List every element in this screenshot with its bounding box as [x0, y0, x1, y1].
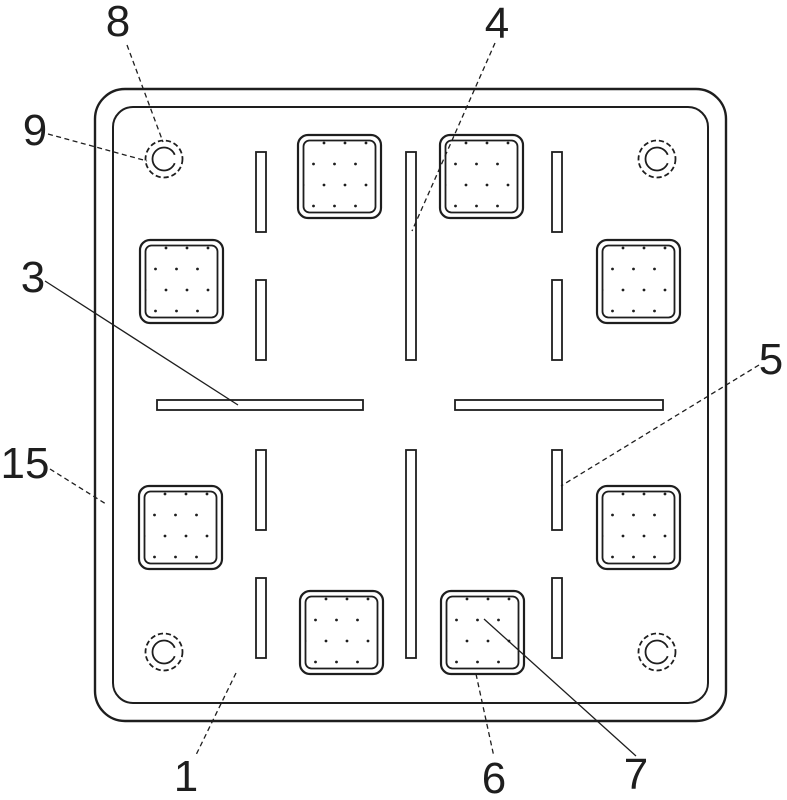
part-label-6: 6 — [482, 757, 506, 800]
pad-lower-right — [597, 486, 680, 569]
part-label-1: 1 — [174, 755, 198, 799]
pad-bottom-center-right — [441, 591, 524, 674]
patent-drawing-canvas: 8 9 3 15 4 5 1 6 7 — [0, 0, 787, 800]
part-label-4: 4 — [485, 2, 509, 46]
slot-vertical-upper-right-2 — [552, 280, 562, 360]
pad-top-center-right — [440, 135, 523, 218]
part-label-7: 7 — [624, 753, 648, 797]
pad-upper-right — [597, 240, 680, 323]
slot-horizontal-left — [157, 400, 363, 410]
pad-top-center-left — [298, 135, 381, 218]
slot-vertical-lower-left-2 — [256, 578, 266, 658]
pad-inner-border — [447, 597, 519, 669]
slot-horizontal-right — [455, 400, 663, 410]
slot-vertical-upper-center — [406, 152, 416, 360]
slot-vertical-upper-left-2 — [256, 280, 266, 360]
part-label-15: 15 — [1, 442, 50, 486]
slot-vertical-upper-left-1 — [256, 152, 266, 232]
slot-vertical-lower-left-1 — [256, 450, 266, 530]
part-label-5: 5 — [759, 338, 783, 382]
slot-vertical-lower-right-2 — [552, 578, 562, 658]
technical-drawing — [0, 0, 787, 800]
pad-inner-border — [146, 246, 218, 318]
pad-inner-border — [306, 597, 378, 669]
part-label-9: 9 — [23, 109, 47, 153]
pad-lower-left — [139, 486, 222, 569]
pad-inner-border — [304, 141, 376, 213]
pad-bottom-center-left — [300, 591, 383, 674]
pad-inner-border — [446, 141, 518, 213]
part-label-8: 8 — [106, 0, 130, 44]
pad-upper-left — [140, 240, 223, 323]
pad-inner-border — [603, 492, 675, 564]
pad-inner-border — [603, 246, 675, 318]
slot-vertical-lower-right-1 — [552, 450, 562, 530]
pad-inner-border — [145, 492, 217, 564]
slot-vertical-upper-right-1 — [552, 152, 562, 232]
slot-vertical-lower-center — [406, 450, 416, 658]
part-label-3: 3 — [21, 256, 45, 300]
